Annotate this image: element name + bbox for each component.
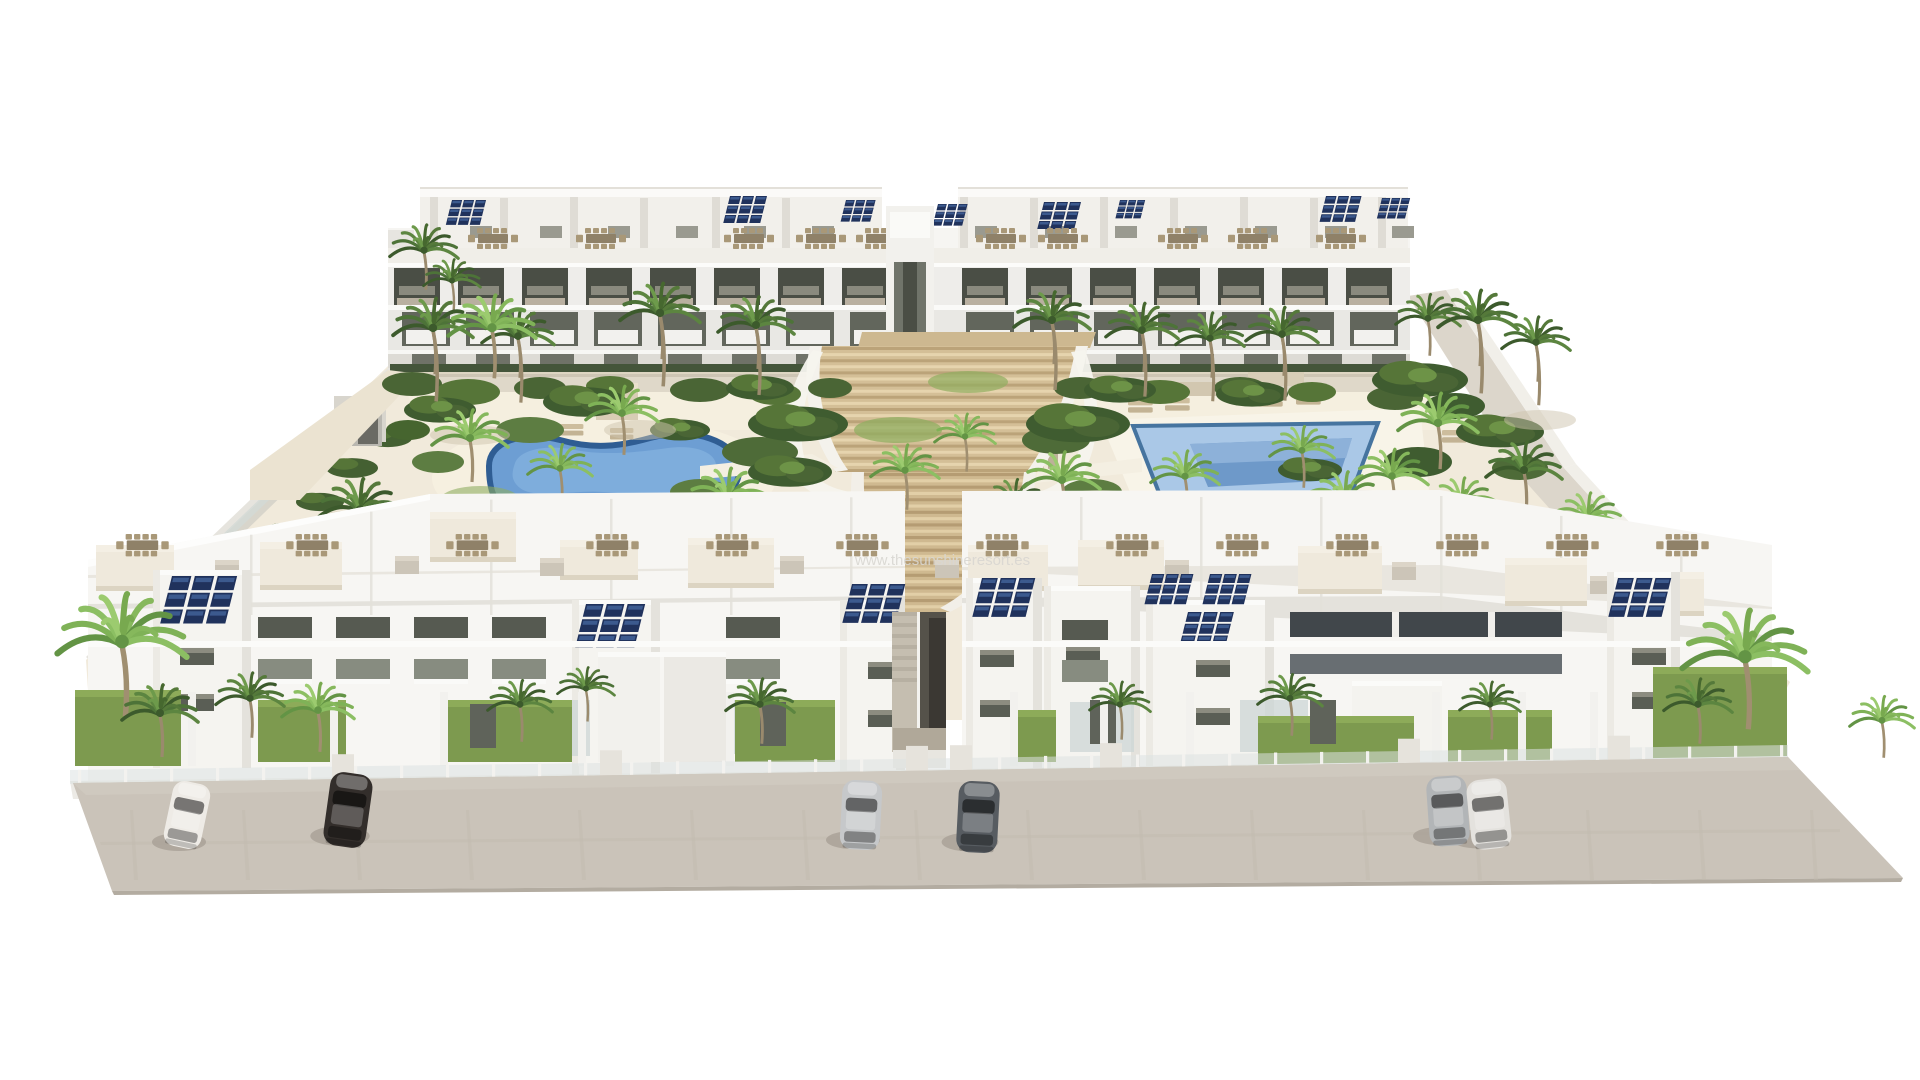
- svg-text:www.thesunshineresort.es: www.thesunshineresort.es: [854, 552, 1030, 569]
